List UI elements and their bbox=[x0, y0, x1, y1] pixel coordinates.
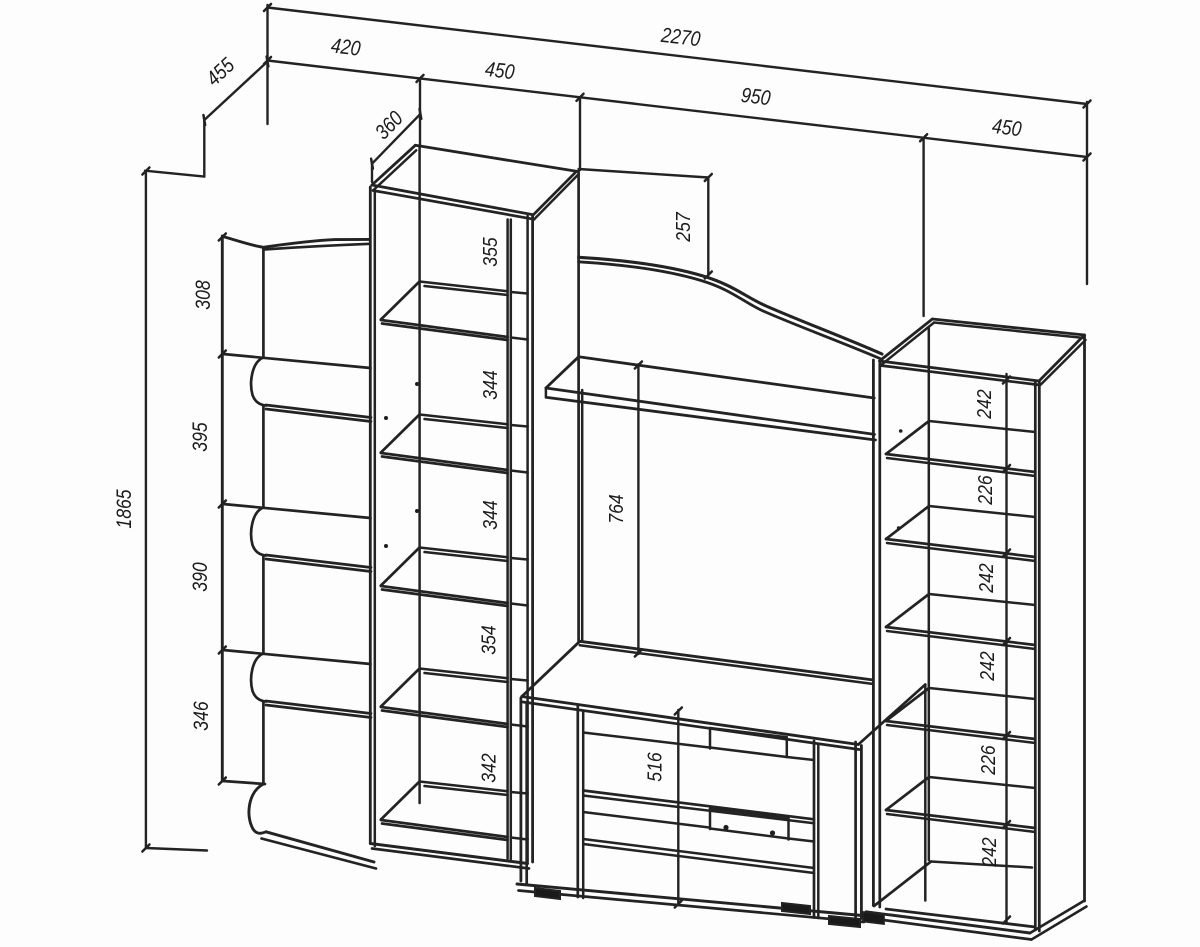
svg-text:420: 420 bbox=[330, 34, 362, 60]
svg-text:242: 242 bbox=[979, 837, 1001, 867]
svg-text:342: 342 bbox=[479, 753, 501, 782]
svg-text:450: 450 bbox=[484, 58, 516, 84]
svg-text:226: 226 bbox=[978, 745, 1000, 776]
svg-text:344: 344 bbox=[480, 500, 502, 529]
svg-text:226: 226 bbox=[975, 475, 997, 506]
svg-text:346: 346 bbox=[190, 701, 213, 731]
svg-text:395: 395 bbox=[189, 422, 212, 452]
svg-text:764: 764 bbox=[606, 494, 628, 523]
svg-text:308: 308 bbox=[192, 280, 215, 310]
svg-text:355: 355 bbox=[480, 237, 502, 267]
svg-text:516: 516 bbox=[645, 752, 667, 782]
svg-text:242: 242 bbox=[977, 651, 999, 681]
svg-text:354: 354 bbox=[479, 625, 501, 654]
svg-text:950: 950 bbox=[740, 84, 772, 110]
svg-text:257: 257 bbox=[673, 212, 695, 243]
svg-text:242: 242 bbox=[974, 389, 996, 419]
svg-text:242: 242 bbox=[976, 563, 998, 593]
svg-text:2270: 2270 bbox=[659, 24, 702, 52]
svg-text:390: 390 bbox=[189, 562, 212, 592]
svg-text:1865: 1865 bbox=[113, 489, 136, 528]
svg-text:450: 450 bbox=[991, 115, 1023, 141]
svg-text:344: 344 bbox=[480, 370, 502, 399]
